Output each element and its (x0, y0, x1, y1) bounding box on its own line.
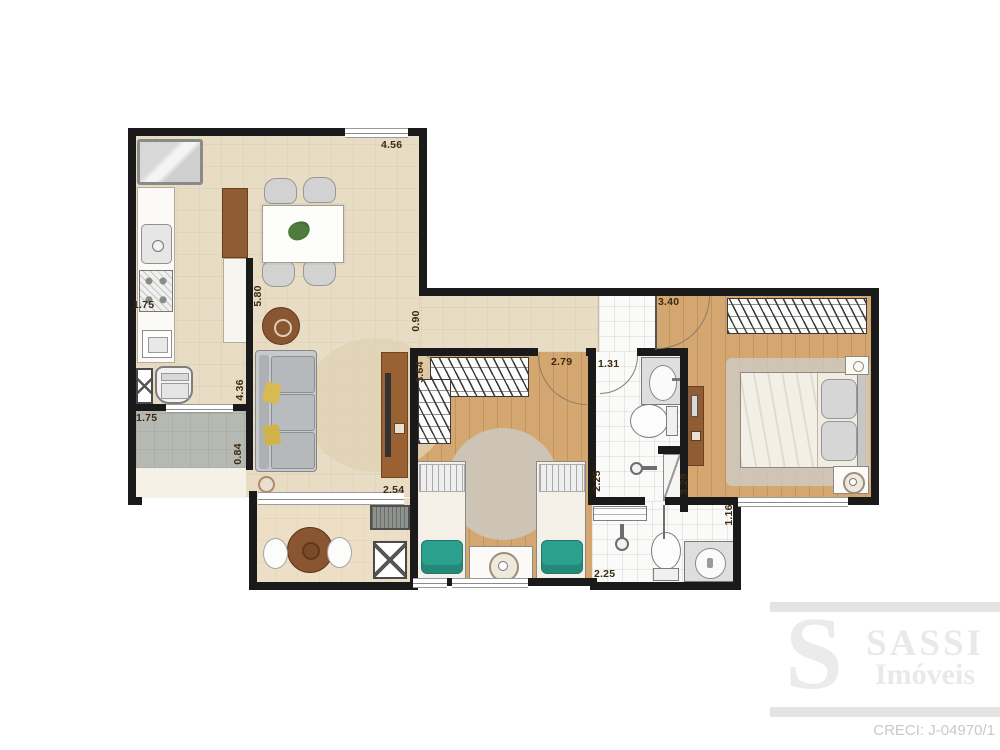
washing-machine (155, 366, 193, 404)
dining-chair (303, 177, 336, 203)
bathroom2-shelf (593, 506, 647, 521)
refrigerator (137, 139, 203, 185)
wall-right (871, 288, 879, 505)
balcony-chair (263, 538, 288, 569)
master-window (738, 497, 848, 507)
shower-head-disc (630, 462, 643, 475)
dimension-label: 4.36 (234, 373, 246, 407)
shower-head-disc (615, 537, 629, 551)
license-number: CRECI: J-04970/1 (845, 722, 995, 739)
bathroom1-vanity (641, 357, 684, 405)
wall-left (128, 128, 136, 505)
bedroom2-window (452, 578, 528, 588)
dimension-label: 0.84 (232, 437, 244, 471)
bathroom2-vanity (684, 541, 734, 582)
dimension-label: 2.54 (383, 484, 404, 496)
bed-cushion (421, 540, 463, 574)
toilet-tank (666, 406, 678, 436)
dimension-label: 5.80 (252, 279, 264, 313)
bed-pillow (821, 421, 857, 461)
dimension-label: 3.64 (414, 355, 426, 389)
wall-bath-divider-a (588, 497, 645, 505)
wall-entry-stub (128, 497, 142, 505)
floor-plan: 4.56 5.80 1.75 1.75 4.36 0.84 2.54 0.90 … (0, 0, 1000, 750)
dimension-label: 4.56 (381, 139, 402, 151)
toilet (651, 532, 681, 570)
wall-hall-top (419, 288, 879, 296)
master-wardrobe (727, 298, 867, 334)
dimension-label: 1.31 (598, 358, 619, 370)
logo-bar-bottom (770, 707, 1000, 717)
wall-laundry-top-a (136, 404, 166, 411)
master-nightstand (833, 466, 869, 494)
balcony-chair (327, 537, 352, 568)
water-heater-shaft (373, 541, 407, 579)
dimension-label: 1.75 (133, 299, 154, 311)
master-nightstand (845, 356, 869, 375)
laundry-opening (166, 404, 233, 413)
hallway-floor (421, 292, 600, 352)
wall-kitchen-right (419, 128, 427, 293)
decor-pot (258, 476, 275, 493)
dimension-label: 1.16 (723, 498, 735, 532)
wall-bedroom2-top-a (410, 348, 538, 356)
dining-chair (264, 178, 297, 204)
round-side-table (262, 307, 300, 345)
bathroom2-door-leaf (663, 505, 665, 539)
kitchen-window (345, 128, 408, 138)
bed-blanket (741, 373, 818, 467)
toilet (630, 404, 668, 438)
tv-console (381, 352, 408, 478)
dimension-label: 1.75 (136, 412, 157, 424)
logo-letter: S (768, 604, 860, 708)
hallway-tile-floor (598, 296, 656, 352)
dimension-label: 3.40 (658, 296, 679, 308)
bed-pillow (821, 379, 857, 419)
duct-shaft-x (136, 368, 153, 404)
single-bed (416, 461, 466, 581)
brand-subtitle: Imóveis (858, 658, 992, 692)
sofa-pillow (262, 424, 281, 446)
entry-floor (136, 468, 246, 498)
wall-balcony-bottom (249, 582, 418, 590)
bedroom2-window (413, 578, 447, 588)
dining-chair (303, 260, 336, 286)
bar-counter (223, 258, 247, 343)
tv (385, 373, 391, 457)
headboard (857, 373, 864, 467)
wall-balcony-left (249, 491, 257, 590)
bed-cushion (541, 540, 583, 574)
single-bed (536, 461, 586, 581)
dimension-label: 2.25 (591, 464, 603, 498)
dining-chair (262, 261, 295, 287)
double-bed (740, 372, 862, 468)
master-dresser-tv (686, 386, 704, 466)
kitchen-appliance (142, 330, 172, 358)
dimension-label: 3.29 (678, 467, 690, 501)
bedroom2-nightstand (469, 546, 533, 582)
dimension-label: 2.25 (594, 568, 615, 580)
dimension-label: 2.79 (551, 356, 572, 368)
wall-bath2-bottom (590, 582, 741, 590)
tv (691, 395, 698, 417)
bar-counter-wood (222, 188, 248, 258)
dimension-label: 0.90 (410, 304, 422, 338)
toilet-tank (653, 568, 679, 581)
sofa (255, 350, 317, 472)
kitchen-sink (141, 224, 172, 264)
sink-basin (649, 365, 677, 401)
master-door-leaf (655, 296, 657, 350)
ac-unit (370, 505, 410, 530)
